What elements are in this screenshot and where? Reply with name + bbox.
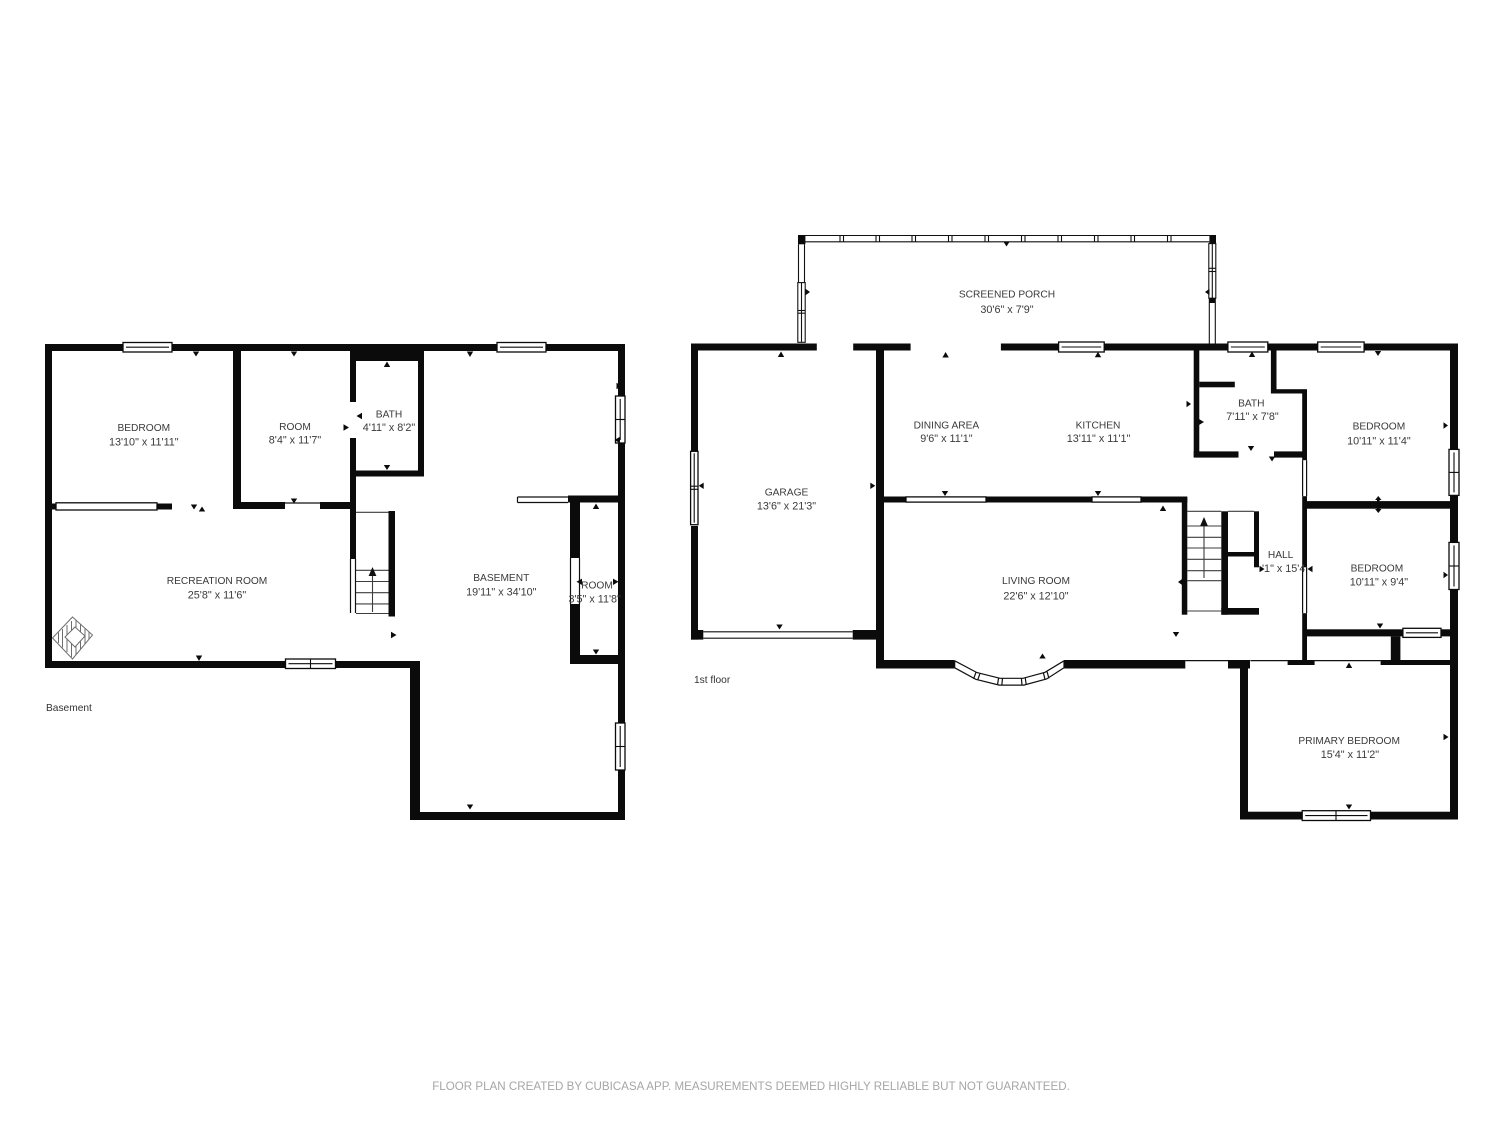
svg-text:HALL: HALL xyxy=(1268,550,1294,561)
svg-text:BEDROOM: BEDROOM xyxy=(117,423,170,434)
svg-text:RECREATION ROOM: RECREATION ROOM xyxy=(167,576,268,587)
svg-text:BASEMENT: BASEMENT xyxy=(473,573,529,584)
svg-text:KITCHEN: KITCHEN xyxy=(1076,421,1121,432)
svg-text:SCREENED PORCH: SCREENED PORCH xyxy=(959,290,1055,301)
svg-text:13'10" x 11'11": 13'10" x 11'11" xyxy=(109,437,179,449)
svg-text:BEDROOM: BEDROOM xyxy=(1351,564,1404,575)
svg-text:PRIMARY BEDROOM: PRIMARY BEDROOM xyxy=(1298,736,1400,747)
svg-text:ROOM: ROOM xyxy=(279,422,311,433)
svg-text:8'4" x 11'7": 8'4" x 11'7" xyxy=(269,435,322,447)
svg-text:10'11" x 11'4": 10'11" x 11'4" xyxy=(1347,436,1411,448)
svg-text:10'11" x 9'4": 10'11" x 9'4" xyxy=(1350,577,1409,589)
svg-text:19'11" x 34'10": 19'11" x 34'10" xyxy=(466,587,537,599)
svg-text:Basement: Basement xyxy=(46,703,92,714)
svg-text:'1" x 15'4: '1" x 15'4 xyxy=(1262,563,1305,575)
svg-text:FLOOR PLAN CREATED BY CUBICASA: FLOOR PLAN CREATED BY CUBICASA APP. MEAS… xyxy=(432,1080,1070,1093)
svg-text:22'6" x 12'10": 22'6" x 12'10" xyxy=(1003,591,1068,603)
svg-text:4'11" x 8'2": 4'11" x 8'2" xyxy=(363,422,416,434)
svg-text:13'6" x 21'3": 13'6" x 21'3" xyxy=(757,501,816,513)
svg-text:BEDROOM: BEDROOM xyxy=(1353,422,1406,433)
svg-text:BATH: BATH xyxy=(376,410,402,421)
svg-text:LIVING ROOM: LIVING ROOM xyxy=(1002,576,1070,587)
svg-text:15'4" x 11'2": 15'4" x 11'2" xyxy=(1321,749,1380,761)
svg-text:7'11" x 7'8": 7'11" x 7'8" xyxy=(1226,411,1279,423)
svg-text:9'6" x 11'1": 9'6" x 11'1" xyxy=(920,433,973,445)
svg-text:30'6" x 7'9": 30'6" x 7'9" xyxy=(980,304,1033,316)
svg-text:DINING AREA: DINING AREA xyxy=(914,421,980,432)
svg-text:GARAGE: GARAGE xyxy=(765,488,809,499)
svg-text:25'8" x 11'6": 25'8" x 11'6" xyxy=(188,590,247,602)
svg-text:1st floor: 1st floor xyxy=(694,675,731,686)
svg-text:BATH: BATH xyxy=(1238,399,1264,410)
svg-text:13'11" x 11'1": 13'11" x 11'1" xyxy=(1067,433,1131,445)
svg-text:ROOM: ROOM xyxy=(581,581,613,592)
svg-text:3'5" x 11'8": 3'5" x 11'8" xyxy=(568,594,621,606)
